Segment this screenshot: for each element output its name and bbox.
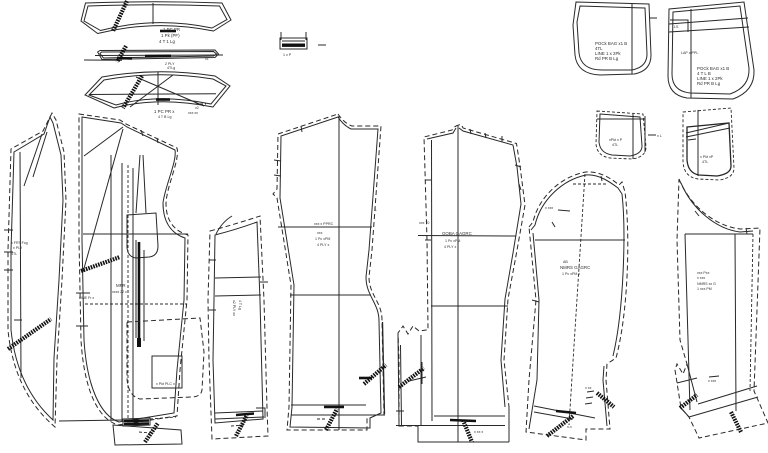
svg-text:NMRS GAGRC: NMRS GAGRC — [560, 265, 590, 270]
svg-text:4 PLY x: 4 PLY x — [444, 245, 456, 249]
svg-text:4TL: 4TL — [11, 252, 17, 256]
svg-text:x xxx: x xxx — [545, 206, 553, 210]
svg-text:Rd PR B Lg: Rd PR B Lg — [595, 56, 619, 61]
svg-text:x2 PLY xx: x2 PLY xx — [232, 300, 236, 316]
svg-text:1 PC PR: 1 PC PR — [163, 27, 180, 32]
svg-text:4TL: 4TL — [702, 160, 708, 164]
svg-text:1 x P: 1 x P — [283, 53, 292, 57]
svg-text:1 Pk (PF): 1 Pk (PF) — [161, 33, 180, 38]
svg-text:x xx: x xx — [585, 386, 592, 390]
svg-text:1 xxx PM: 1 xxx PM — [697, 287, 712, 291]
svg-text:x xxx: x xxx — [708, 379, 716, 383]
svg-text:4TLg: 4TLg — [167, 66, 175, 70]
svg-text:4 PLY x: 4 PLY x — [317, 243, 329, 247]
svg-text:NMRS xx G: NMRS xx G — [697, 282, 716, 286]
svg-text:xxx x PPRC: xxx x PPRC — [314, 222, 334, 226]
svg-text:xxx xx: xxx xx — [188, 111, 198, 115]
svg-text:1 Pc xPM: 1 Pc xPM — [315, 237, 330, 241]
svg-text:1 Pc xPM: 1 Pc xPM — [445, 239, 460, 243]
svg-text:4 T B Lg: 4 T B Lg — [158, 115, 171, 119]
svg-text:x2: x2 — [195, 106, 199, 110]
svg-text:4 T 1 Lg: 4 T 1 Lg — [159, 39, 176, 44]
svg-text:1 Pc xPM x: 1 Pc xPM x — [562, 272, 580, 276]
svg-text:4 T Lg: 4 T Lg — [238, 300, 242, 310]
svg-text:LS: LS — [674, 25, 679, 29]
svg-text:x PLY: x PLY — [13, 246, 23, 250]
svg-text:4TL: 4TL — [612, 143, 618, 147]
svg-text:xPkt x P: xPkt x P — [609, 138, 623, 142]
svg-text:x FRT Fcg: x FRT Fcg — [11, 241, 28, 245]
svg-text:x-x: x-x — [567, 425, 572, 429]
svg-text:xxx 70: xxx 70 — [419, 221, 429, 225]
svg-text:Rd PR B Lg: Rd PR B Lg — [697, 81, 721, 86]
svg-text:x1: x1 — [205, 57, 209, 61]
svg-text:LAP x PPL: LAP x PPL — [681, 51, 698, 55]
svg-text:1 PC PR x: 1 PC PR x — [154, 109, 175, 114]
svg-text:L: L — [375, 208, 377, 212]
svg-text:x Pkt PLC x: x Pkt PLC x — [156, 382, 175, 386]
svg-text:x L: x L — [657, 134, 662, 138]
svg-text:xxx Pxx: xxx Pxx — [697, 271, 710, 275]
svg-text:x xxx: x xxx — [697, 276, 705, 280]
svg-text:xxxx 22 x: xxxx 22 x — [112, 290, 127, 294]
svg-text:GOBA GAGRC: GOBA GAGRC — [442, 231, 472, 236]
svg-text:xxx: xxx — [317, 231, 323, 235]
svg-text:x Pkt xP: x Pkt xP — [700, 155, 714, 159]
svg-text:LINE Fr x: LINE Fr x — [79, 296, 94, 300]
svg-text:MFR: MFR — [116, 283, 126, 288]
svg-text:x xx x: x xx x — [474, 430, 483, 434]
svg-text:AB: AB — [563, 260, 568, 264]
